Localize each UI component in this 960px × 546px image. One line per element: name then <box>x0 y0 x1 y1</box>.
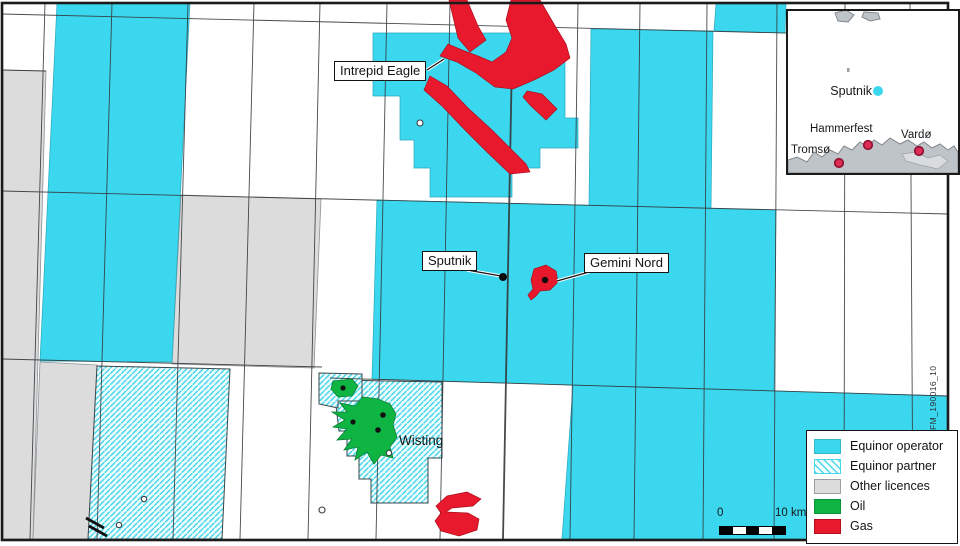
legend-swatch-operator <box>814 439 841 454</box>
legend-item-oil: Oil <box>807 496 957 516</box>
legend-swatch-oil <box>814 499 841 514</box>
legend: Equinor operator Equinor partner Other l… <box>806 430 958 544</box>
inset-sputnik-dot <box>873 86 883 96</box>
figure-code: FM_190016_10 <box>928 364 938 430</box>
label-intrepid-eagle: Intrepid Eagle <box>334 61 426 81</box>
inset-tromso-label: Tromsø <box>791 144 830 156</box>
gemini-nord-dot <box>542 277 548 283</box>
legend-swatch-gas <box>814 519 841 534</box>
label-wisting: Wisting <box>399 433 443 448</box>
scale-bar-segments <box>719 526 786 535</box>
legend-label-oil: Oil <box>850 499 865 513</box>
map-figure: Intrepid Eagle Sputnik Gemini Nord Wisti… <box>0 0 960 546</box>
inset-dot-vardo <box>915 147 924 156</box>
inset-dot-tromso <box>835 159 844 168</box>
legend-swatch-partner <box>814 459 841 474</box>
legend-item-other: Other licences <box>807 476 957 496</box>
inset-vardo-label: Vardø <box>901 129 931 141</box>
legend-item-gas: Gas <box>807 516 957 536</box>
scale-start-label: 0 <box>717 507 723 519</box>
legend-label-operator: Equinor operator <box>850 439 943 453</box>
sputnik-discovery-dot <box>499 273 507 281</box>
legend-item-operator: Equinor operator <box>807 436 957 456</box>
inset-dot-hammerfest <box>864 141 873 150</box>
legend-label-gas: Gas <box>850 519 873 533</box>
scale-bar: 0 10 km <box>712 507 812 539</box>
label-sputnik: Sputnik <box>422 251 477 271</box>
legend-swatch-other <box>814 479 841 494</box>
inset-map: Sputnik Hammerfest Vardø Tromsø <box>786 9 960 175</box>
inset-sputnik-label: Sputnik <box>820 84 872 98</box>
label-gemini-nord: Gemini Nord <box>584 253 669 273</box>
legend-item-partner: Equinor partner <box>807 456 957 476</box>
scale-end-label: 10 km <box>775 507 806 519</box>
inset-islet-speck <box>847 68 850 72</box>
inset-hammerfest-label: Hammerfest <box>810 123 873 135</box>
legend-label-partner: Equinor partner <box>850 459 936 473</box>
legend-label-other: Other licences <box>850 479 930 493</box>
